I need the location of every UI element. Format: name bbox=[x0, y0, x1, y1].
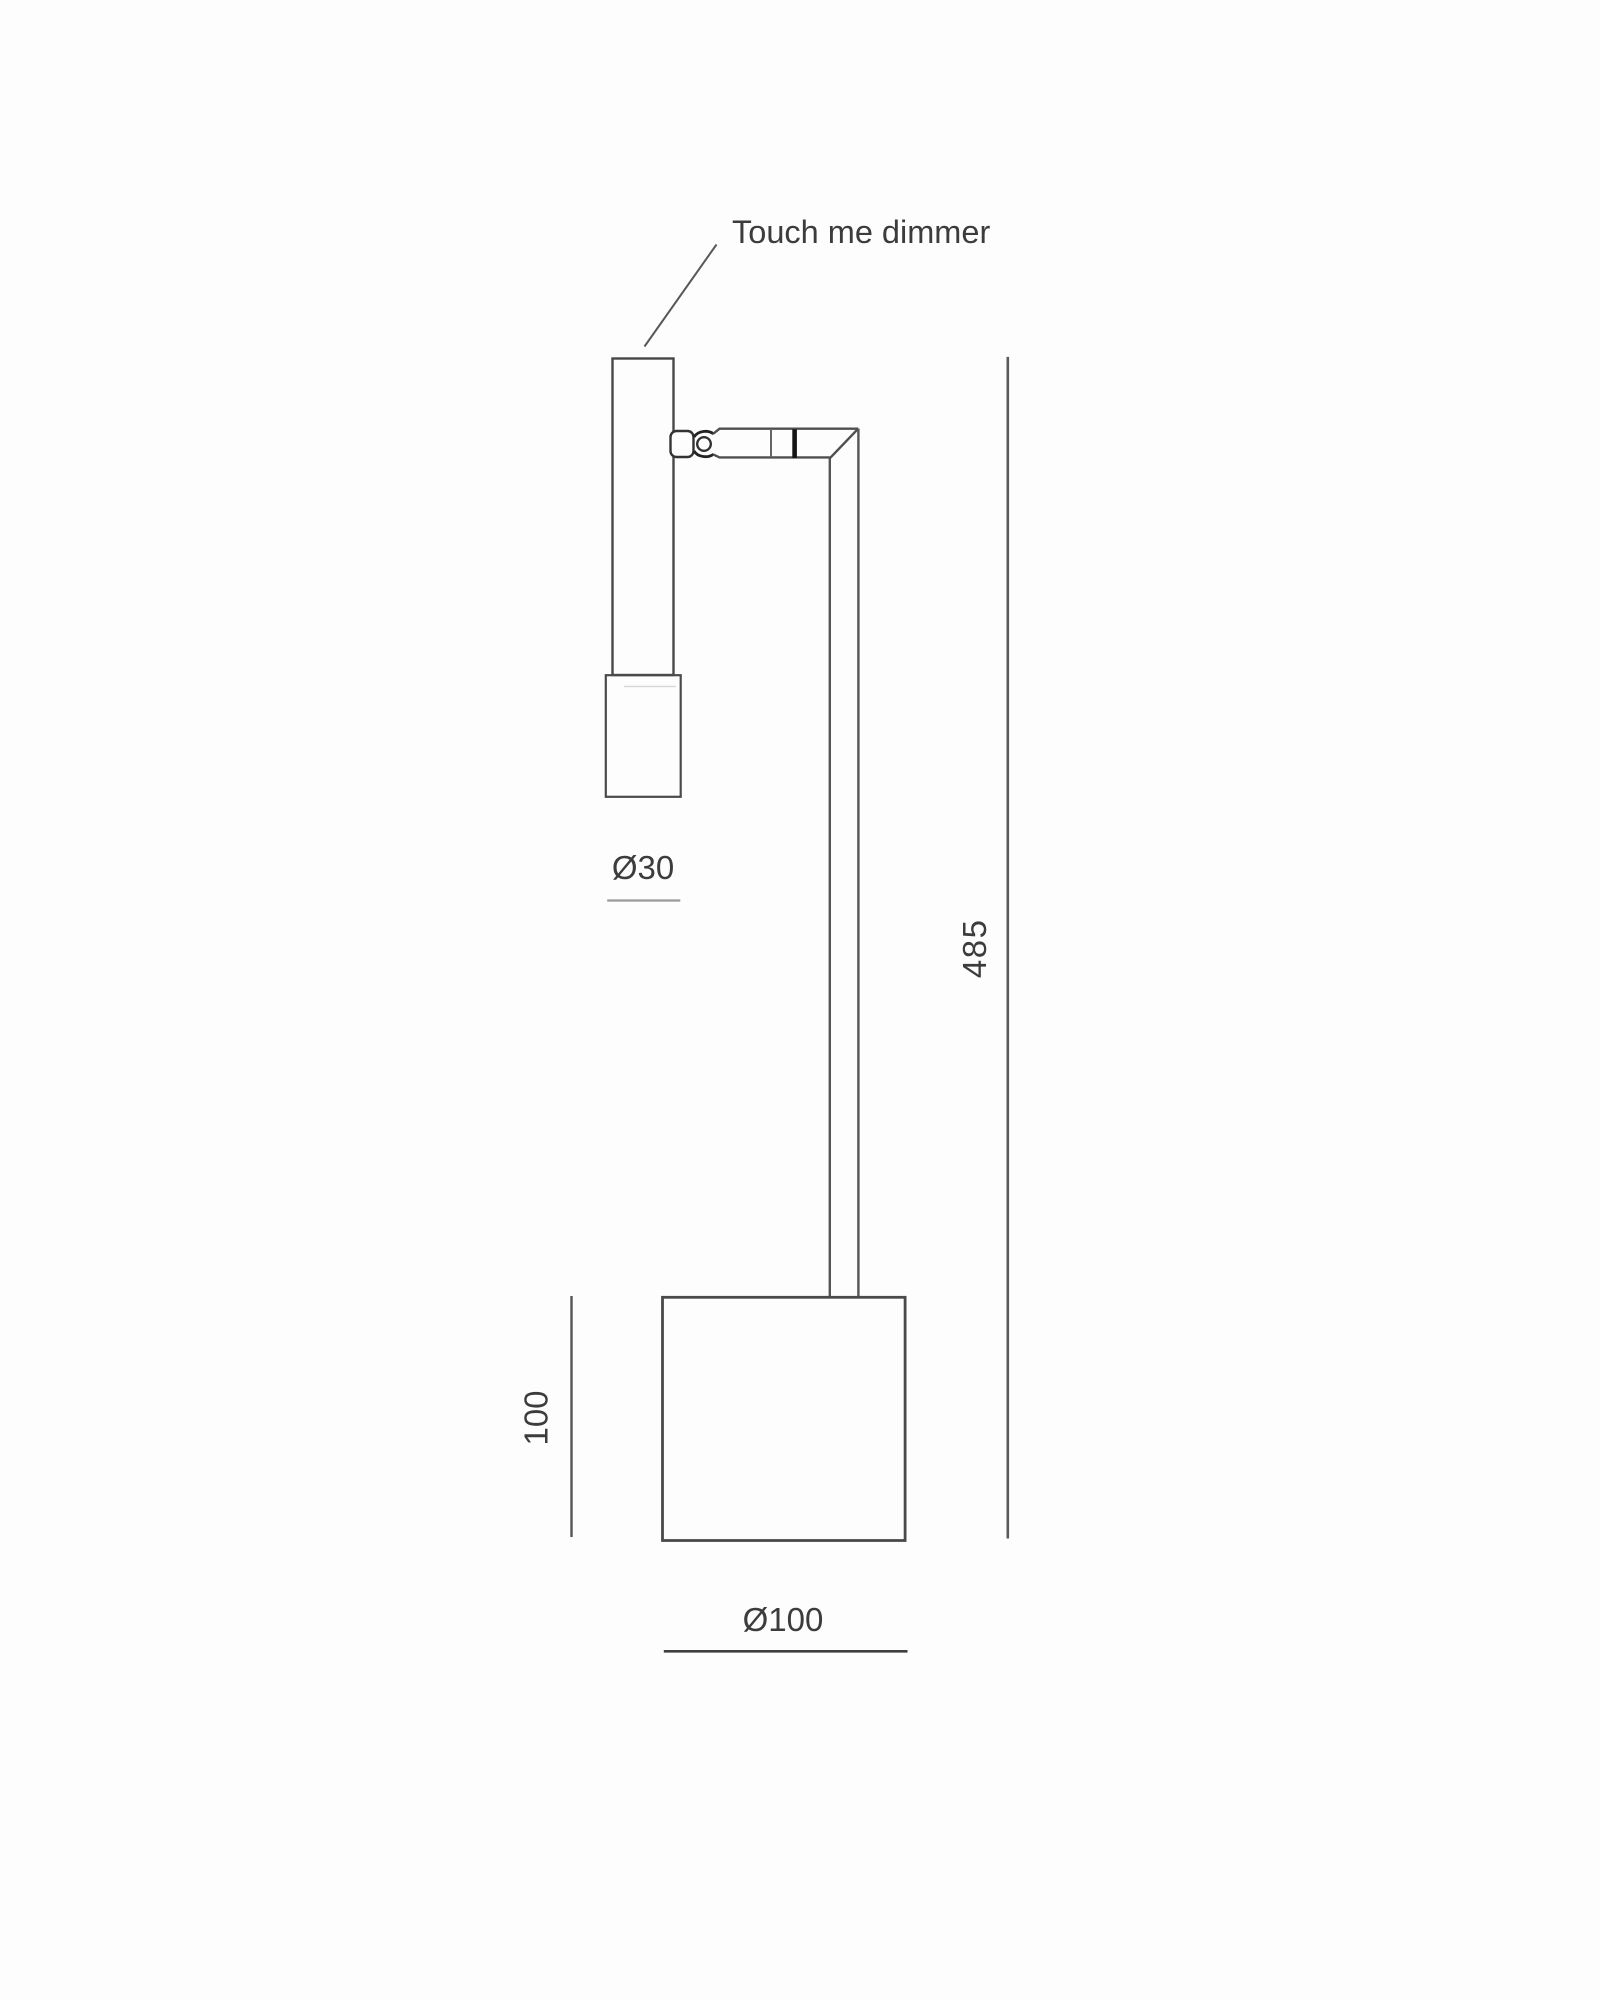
svg-text:100: 100 bbox=[518, 1390, 555, 1445]
svg-text:Ø100: Ø100 bbox=[743, 1601, 824, 1638]
svg-text:Ø30: Ø30 bbox=[612, 849, 674, 886]
svg-text:Touch me dimmer: Touch me dimmer bbox=[732, 214, 990, 250]
svg-text:485: 485 bbox=[956, 919, 993, 979]
